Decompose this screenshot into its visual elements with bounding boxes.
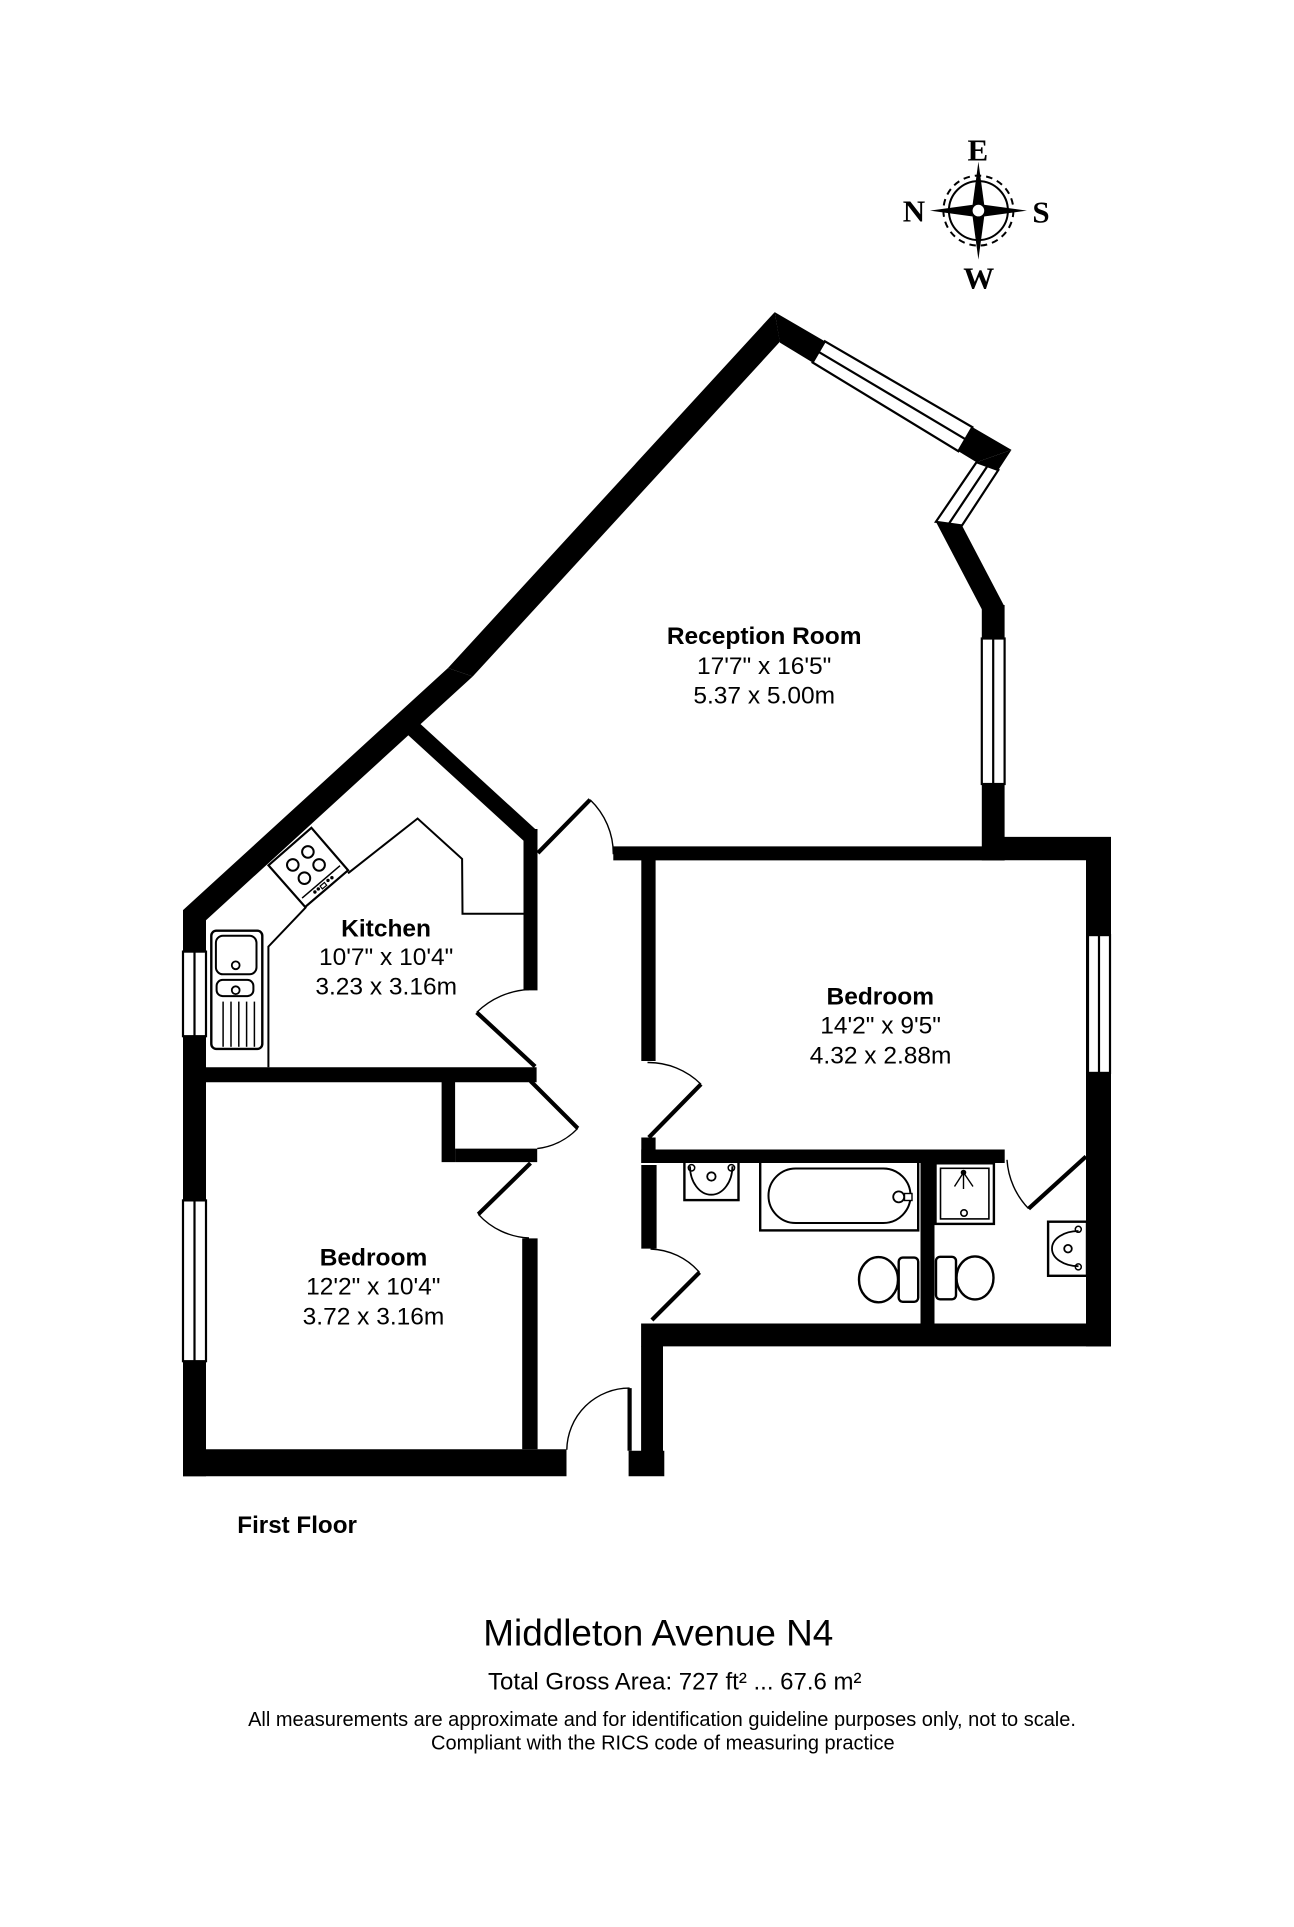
svg-text:3.23 x 3.16m: 3.23 x 3.16m	[315, 974, 457, 1001]
svg-text:Kitchen: Kitchen	[341, 916, 431, 943]
svg-text:14'2" x 9'5": 14'2" x 9'5"	[820, 1012, 941, 1039]
svg-text:Total Gross Area: 727 ft² ...: Total Gross Area: 727 ft² ... 67.6 m²	[488, 1669, 862, 1696]
svg-text:First Floor: First Floor	[237, 1512, 357, 1539]
svg-text:Middleton Avenue N4: Middleton Avenue N4	[483, 1613, 833, 1654]
svg-text:Bedroom: Bedroom	[827, 983, 935, 1010]
svg-text:S: S	[1032, 195, 1049, 230]
svg-text:17'7" x 16'5": 17'7" x 16'5"	[697, 653, 831, 680]
svg-text:10'7" x 10'4": 10'7" x 10'4"	[319, 944, 453, 971]
svg-text:E: E	[967, 132, 988, 167]
svg-text:12'2" x 10'4": 12'2" x 10'4"	[306, 1274, 440, 1301]
svg-text:3.72 x 3.16m: 3.72 x 3.16m	[303, 1304, 445, 1331]
svg-text:Compliant with the RICS code o: Compliant with the RICS code of measurin…	[431, 1733, 895, 1755]
svg-text:5.37 x 5.00m: 5.37 x 5.00m	[693, 683, 835, 710]
svg-text:4.32 x 2.88m: 4.32 x 2.88m	[810, 1042, 952, 1069]
svg-text:W: W	[963, 260, 994, 295]
svg-text:N: N	[903, 194, 925, 229]
svg-text:Reception Room: Reception Room	[667, 623, 862, 650]
svg-text:All measurements are approxima: All measurements are approximate and for…	[248, 1709, 1076, 1731]
svg-text:Bedroom: Bedroom	[320, 1245, 428, 1272]
